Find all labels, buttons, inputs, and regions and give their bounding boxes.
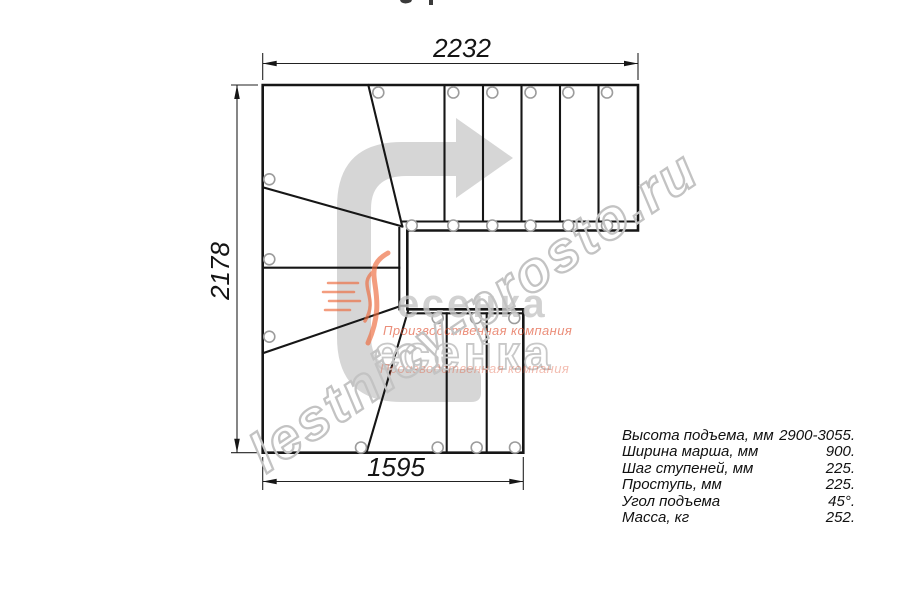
screw-hole bbox=[264, 254, 275, 265]
screw-hole bbox=[406, 220, 417, 231]
spec-row: Шаг ступеней, мм 225. bbox=[622, 461, 855, 477]
dimension-arrow bbox=[624, 61, 638, 67]
spec-label: Угол подъема bbox=[622, 494, 720, 510]
crop-fragment bbox=[400, 0, 433, 5]
spec-value: 2900-3055. bbox=[779, 428, 855, 444]
spec-row: Масса, кг 252. bbox=[622, 510, 855, 526]
spec-row: Угол подъема 45°. bbox=[622, 494, 855, 510]
screw-hole bbox=[510, 442, 521, 453]
screw-hole bbox=[602, 87, 613, 98]
crop-fragment-mark bbox=[400, 0, 412, 4]
screw-hole bbox=[563, 87, 574, 98]
dimension-top: 2232 bbox=[263, 33, 638, 80]
dimension-arrow bbox=[234, 85, 240, 99]
spec-value: 45°. bbox=[828, 494, 855, 510]
spec-value: 225. bbox=[826, 477, 855, 493]
spec-value: 900. bbox=[826, 444, 855, 460]
screw-hole bbox=[471, 442, 482, 453]
screw-hole bbox=[487, 220, 498, 231]
dim-top-label: 2232 bbox=[432, 33, 491, 63]
spec-row: Проступь, мм 225. bbox=[622, 477, 855, 493]
screw-hole bbox=[525, 87, 536, 98]
spec-value: 252. bbox=[826, 510, 855, 526]
dimension-arrow bbox=[263, 61, 277, 67]
spec-label: Шаг ступеней, мм bbox=[622, 461, 753, 477]
dimension-arrow bbox=[234, 439, 240, 453]
dim-bottom-label: 1595 bbox=[367, 452, 425, 482]
screw-hole bbox=[373, 87, 384, 98]
specs-table: Высота подъема, мм 2900-3055. Ширина мар… bbox=[622, 428, 855, 526]
dim-left-label: 2178 bbox=[205, 242, 235, 301]
dimension-left: 2178 bbox=[205, 85, 258, 453]
winder-line bbox=[263, 187, 403, 226]
spec-row: Высота подъема, мм 2900-3055. bbox=[622, 428, 855, 444]
spec-label: Проступь, мм bbox=[622, 477, 722, 493]
stair-plan-page: 2232 2178 1595 bbox=[0, 0, 900, 600]
screw-hole bbox=[487, 87, 498, 98]
spec-value: 225. bbox=[826, 461, 855, 477]
spec-label: Высота подъема, мм bbox=[622, 428, 774, 444]
screw-hole bbox=[432, 442, 443, 453]
screw-hole bbox=[356, 442, 367, 453]
screw-hole bbox=[448, 220, 459, 231]
screw-hole bbox=[264, 174, 275, 185]
screw-hole bbox=[448, 87, 459, 98]
screw-hole bbox=[264, 331, 275, 342]
spec-row: Ширина марша, мм 900. bbox=[622, 444, 855, 460]
crop-fragment-mark bbox=[429, 0, 433, 5]
spec-label: Масса, кг bbox=[622, 510, 689, 526]
dimension-arrow bbox=[509, 479, 523, 485]
spec-label: Ширина марша, мм bbox=[622, 444, 758, 460]
